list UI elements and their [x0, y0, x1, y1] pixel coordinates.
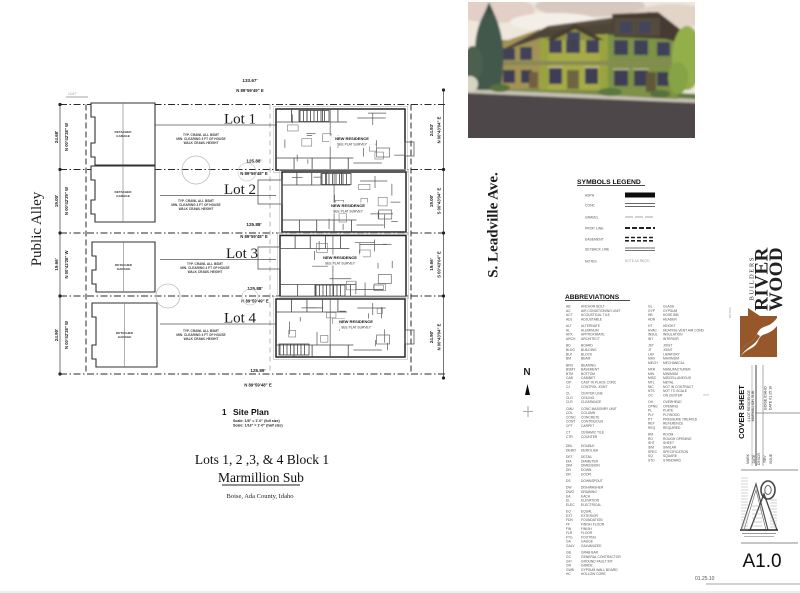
svg-text:CTR: CTR [566, 435, 573, 439]
svg-text:N 00°42'28" W: N 00°42'28" W [64, 250, 69, 278]
svg-text:19.00': 19.00' [54, 195, 59, 207]
svg-text:DATE 01.25.10: DATE 01.25.10 [769, 386, 773, 410]
svg-text:REV: REV [763, 455, 767, 463]
svg-text:125.89': 125.89' [250, 368, 265, 373]
svg-text:STANDARD: STANDARD [663, 458, 682, 462]
svg-text:HDR: HDR [648, 317, 656, 321]
svg-text:SEE PLAT SURVEY: SEE PLAT SURVEY [341, 326, 372, 330]
svg-text:N 00°42'29" W: N 00°42'29" W [64, 187, 69, 215]
svg-text:MECH: MECH [648, 361, 658, 365]
svg-text:PROP. LINE: PROP. LINE [585, 227, 604, 231]
svg-text:NEW RESIDENCE: NEW RESIDENCE [323, 255, 357, 260]
svg-text:ADJUSTABLE: ADJUSTABLE [581, 317, 603, 321]
svg-text:CPT: CPT [566, 424, 573, 428]
svg-text:CARPET: CARPET [581, 424, 594, 428]
svg-text:GARAGE: GARAGE [117, 267, 131, 271]
svg-text:SEE PLAT SURVEY: SEE PLAT SURVEY [333, 210, 364, 214]
svg-text:Public Alley: Public Alley [29, 191, 45, 266]
svg-text:CONTROL JOINT: CONTROL JOINT [581, 385, 607, 389]
svg-text:INTERIOR: INTERIOR [663, 337, 679, 341]
svg-text:ABBREVIATIONS: ABBREVIATIONS [565, 294, 620, 301]
svg-text:MECHANICAL: MECHANICAL [663, 361, 685, 365]
svg-text:INT: INT [648, 337, 653, 341]
svg-text:A1.0: A1.0 [742, 551, 781, 572]
svg-text:24.93': 24.93' [429, 124, 434, 136]
svg-text:N 00°42'28" W: N 00°42'28" W [64, 123, 69, 151]
svg-text:OC: OC [648, 393, 654, 397]
svg-text:DS: DS [566, 479, 571, 483]
svg-text:ELECTRICAL: ELECTRICAL [581, 503, 602, 507]
svg-text:125.88': 125.88' [246, 222, 261, 227]
svg-text:COVER SHEET: COVER SHEET [737, 385, 746, 439]
svg-text:DOWNSPOUT: DOWNSPOUT [581, 479, 603, 483]
svg-text:Site Plan: Site Plan [233, 407, 269, 417]
svg-text:N 89°59'48" E: N 89°59'48" E [240, 234, 268, 239]
svg-text:DATE: DATE [752, 454, 756, 464]
svg-text:01.25.10: 01.25.10 [695, 576, 715, 582]
svg-text:24.90': 24.90' [429, 331, 434, 343]
svg-text:REQ: REQ [648, 426, 656, 430]
svg-text:GARAGE: GARAGE [116, 134, 130, 138]
svg-text:HC: HC [566, 572, 571, 576]
svg-text:19.00': 19.00' [429, 195, 434, 207]
svg-text:19.66': 19.66' [429, 258, 434, 270]
svg-text:ARCHITECT: ARCHITECT [581, 337, 600, 341]
svg-text:N 89°59'49" E: N 89°59'49" E [236, 88, 264, 93]
svg-text:COUNTER: COUNTER [581, 435, 598, 439]
svg-text:BEAM: BEAM [581, 357, 591, 361]
svg-text:N 89°59'48" E: N 89°59'48" E [244, 383, 272, 388]
svg-text:DEMOLISH: DEMOLISH [581, 448, 599, 452]
svg-text:MARMILLION SUB: MARMILLION SUB [751, 390, 755, 421]
svg-text:GARAGE: GARAGE [118, 335, 132, 339]
svg-text:N 00°42'28" W: N 00°42'28" W [64, 321, 69, 349]
svg-text:DOOR: DOOR [581, 472, 592, 476]
svg-text:NEW RESIDENCE: NEW RESIDENCE [331, 203, 365, 208]
svg-text:S 00°43'04" E: S 00°43'04" E [437, 188, 442, 215]
svg-text:ON CENTER: ON CENTER [663, 393, 683, 397]
svg-text:NEW RESIDENCE: NEW RESIDENCE [335, 136, 369, 141]
svg-text:13.67': 13.67' [68, 92, 77, 96]
svg-text:Boise, Ada County, Idaho: Boise, Ada County, Idaho [227, 493, 294, 500]
svg-text:ASPH: ASPH [585, 194, 595, 198]
svg-text:DR: DR [566, 472, 571, 476]
svg-text:NOTES:: NOTES: [728, 307, 732, 318]
svg-text:EASEMENT: EASEMENT [585, 238, 604, 242]
svg-text:WALK CRAWL HEIGHT: WALK CRAWL HEIGHT [184, 141, 219, 145]
svg-text:NEW RESIDENCE: NEW RESIDENCE [339, 319, 373, 324]
svg-text:24.90': 24.90' [54, 329, 59, 341]
svg-text:WALK CRAWL HEIGHT: WALK CRAWL HEIGHT [184, 337, 219, 341]
svg-text:GRAVEL: GRAVEL [585, 216, 599, 220]
svg-text:GALV: GALV [566, 544, 575, 548]
svg-text:SYMBOLS LEGEND: SYMBOLS LEGEND [577, 179, 641, 186]
svg-text:SEE PLAT SURVEY: SEE PLAT SURVEY [325, 262, 356, 266]
svg-text:133.67': 133.67' [242, 78, 257, 83]
svg-text:NOTE AS REQ'D: NOTE AS REQ'D [625, 259, 650, 263]
svg-text:24.68': 24.68' [54, 131, 59, 143]
svg-text:1: 1 [222, 408, 227, 417]
svg-text:DESCR: DESCR [757, 453, 761, 465]
svg-text:S 00°43'04" E: S 00°43'04" E [437, 251, 442, 278]
svg-text:MARK: MARK [746, 453, 750, 464]
svg-text:DEMO: DEMO [566, 448, 576, 452]
svg-text:NOTES: NOTES [585, 260, 597, 264]
svg-text:STD: STD [648, 458, 655, 462]
svg-text:S. Leadville Ave.: S. Leadville Ave. [486, 172, 502, 278]
svg-text:ARCH: ARCH [566, 337, 576, 341]
svg-text:19.66': 19.66' [54, 258, 59, 270]
svg-text:REQUIRED: REQUIRED [663, 426, 681, 430]
svg-text:ELEC: ELEC [566, 503, 575, 507]
svg-text:SETBACK LINE: SETBACK LINE [585, 248, 610, 252]
svg-text:WALK CRAWL HEIGHT: WALK CRAWL HEIGHT [188, 270, 223, 274]
svg-text:Scale: 1/8" = 1'-0" (full size: Scale: 1/8" = 1'-0" (full size) [233, 419, 281, 423]
svg-text:GARAGE: GARAGE [116, 194, 130, 198]
svg-text:CJ: CJ [566, 385, 570, 389]
svg-text:HEADER: HEADER [663, 317, 677, 321]
svg-text:N 00°43'04" E: N 00°43'04" E [437, 116, 442, 143]
svg-text:ISSUE: ISSUE [769, 453, 773, 464]
svg-text:SEE PLAT SURVEY: SEE PLAT SURVEY [337, 143, 368, 147]
svg-text:B U I L D E R S: B U I L D E R S [749, 257, 756, 300]
svg-text:CLR: CLR [566, 400, 573, 404]
svg-text:Scale: 1/16" = 1'-0" (half siz: Scale: 1/16" = 1'-0" (half size) [233, 424, 284, 428]
svg-text:125.88': 125.88' [246, 159, 261, 164]
svg-text:CLEARANCE: CLEARANCE [581, 400, 602, 404]
svg-text:Marmillion Sub: Marmillion Sub [218, 470, 304, 485]
svg-text:Lots 1, 2 ,3, & 4 Block 1: Lots 1, 2 ,3, & 4 Block 1 [195, 452, 329, 467]
svg-text:BM: BM [566, 357, 571, 361]
svg-text:CONC: CONC [585, 204, 596, 208]
svg-text:125.88': 125.88' [247, 286, 262, 291]
svg-text:N 89°59'48" E: N 89°59'48" E [240, 171, 268, 176]
svg-text:N 00°43'04" E: N 00°43'04" E [437, 323, 442, 350]
svg-text:GALVANIZED: GALVANIZED [581, 544, 602, 548]
svg-text:HOLLOW CORE: HOLLOW CORE [581, 572, 607, 576]
svg-text:ADJ: ADJ [566, 317, 573, 321]
svg-text:BOISE IDAHO: BOISE IDAHO [764, 386, 768, 410]
svg-text:N: N [523, 367, 530, 378]
svg-text:WALK CRAWL HEIGHT: WALK CRAWL HEIGHT [179, 207, 214, 211]
svg-text:wet: wet [703, 392, 710, 397]
